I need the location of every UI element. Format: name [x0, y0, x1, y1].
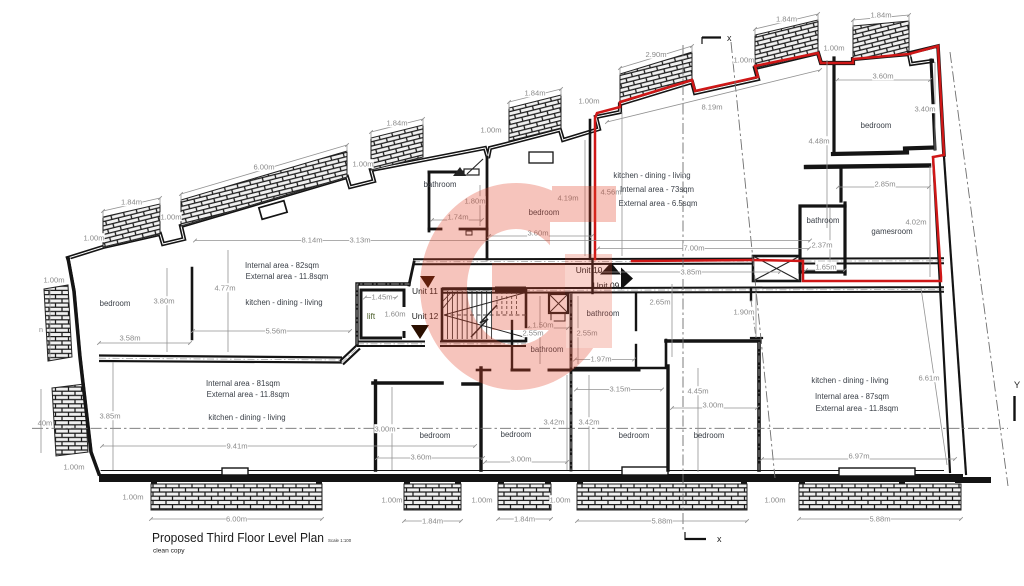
svg-text:gamesroom: gamesroom	[871, 227, 912, 236]
svg-text:clean copy: clean copy	[153, 548, 185, 555]
svg-text:kitchen - dining - living: kitchen - dining - living	[208, 413, 285, 422]
svg-text:2.85m: 2.85m	[874, 180, 895, 189]
svg-text:External area - 11.8sqm: External area - 11.8sqm	[246, 272, 329, 281]
svg-text:bedroom: bedroom	[501, 430, 532, 439]
svg-text:1.00m: 1.00m	[381, 496, 402, 505]
svg-text:3.60m: 3.60m	[410, 453, 431, 462]
svg-text:1.00m: 1.00m	[578, 97, 599, 106]
svg-text:1.00m: 1.00m	[480, 126, 501, 135]
svg-text:5.88m: 5.88m	[651, 517, 672, 526]
svg-text:3.58m: 3.58m	[119, 334, 140, 343]
svg-text:2.37m: 2.37m	[811, 241, 832, 250]
svg-text:3.00m: 3.00m	[702, 401, 723, 410]
svg-text:1.00m: 1.00m	[122, 493, 143, 502]
svg-text:1.84m: 1.84m	[514, 515, 535, 524]
svg-text:1.90m: 1.90m	[733, 308, 754, 317]
svg-text:External area - 11.8sqm: External area - 11.8sqm	[207, 390, 290, 399]
svg-text:40m: 40m	[38, 419, 53, 428]
svg-text:1.00m: 1.00m	[471, 496, 492, 505]
svg-text:4.48m: 4.48m	[808, 137, 829, 146]
svg-text:1.84m: 1.84m	[870, 11, 891, 20]
svg-text:3.42m: 3.42m	[578, 418, 599, 427]
svg-text:1.84m: 1.84m	[422, 517, 443, 526]
svg-text:1.00m: 1.00m	[63, 463, 84, 472]
svg-text:1.65m: 1.65m	[815, 263, 836, 272]
svg-text:8.19m: 8.19m	[701, 103, 722, 112]
svg-text:3.13m: 3.13m	[349, 236, 370, 245]
svg-text:1.00m: 1.00m	[352, 160, 373, 169]
svg-text:bedroom: bedroom	[420, 431, 451, 440]
svg-text:5.56m: 5.56m	[265, 327, 286, 336]
svg-text:1.00m: 1.00m	[43, 276, 64, 285]
svg-text:1.84m: 1.84m	[386, 119, 407, 128]
svg-text:1.00m: 1.00m	[823, 44, 844, 53]
svg-text:Scale 1:100: Scale 1:100	[328, 538, 352, 543]
svg-text:4.77m: 4.77m	[214, 284, 235, 293]
svg-text:6.61m: 6.61m	[918, 374, 939, 383]
svg-text:1.00m: 1.00m	[160, 213, 181, 222]
svg-text:6.97m: 6.97m	[848, 452, 869, 461]
svg-text:3.00m: 3.00m	[510, 455, 531, 464]
svg-text:bedroom: bedroom	[619, 431, 650, 440]
svg-text:3.60m: 3.60m	[872, 72, 893, 81]
svg-text:3.42m: 3.42m	[543, 418, 564, 427]
svg-text:1.84m: 1.84m	[524, 89, 545, 98]
svg-text:3.85m: 3.85m	[99, 412, 120, 421]
svg-text:9.41m: 9.41m	[226, 442, 247, 451]
svg-text:2.65m: 2.65m	[649, 298, 670, 307]
svg-text:4.02m: 4.02m	[905, 218, 926, 227]
svg-text:1.00m: 1.00m	[83, 234, 104, 243]
svg-text:x: x	[727, 33, 732, 43]
svg-text:1.84m: 1.84m	[121, 198, 142, 207]
svg-text:x: x	[717, 534, 722, 544]
svg-text:6.00m: 6.00m	[226, 515, 247, 524]
svg-text:1.60m: 1.60m	[384, 310, 405, 319]
svg-text:8.14m: 8.14m	[301, 236, 322, 245]
svg-text:Y: Y	[1014, 380, 1021, 391]
svg-text:bedroom: bedroom	[861, 121, 892, 130]
svg-text:3.85m: 3.85m	[680, 268, 701, 277]
svg-text:kitchen - dining - living: kitchen - dining - living	[811, 376, 888, 385]
svg-text:Internal area - 82sqm: Internal area - 82sqm	[245, 261, 319, 270]
svg-text:3.80m: 3.80m	[153, 297, 174, 306]
svg-text:Internal area - 87sqm: Internal area - 87sqm	[815, 392, 889, 401]
svg-text:Proposed Third Floor Level Pla: Proposed Third Floor Level Plan	[152, 531, 324, 545]
svg-text:7.00m: 7.00m	[683, 244, 704, 253]
svg-text:2.90m: 2.90m	[645, 50, 666, 59]
svg-text:1.84m: 1.84m	[776, 15, 797, 24]
svg-text:lift: lift	[367, 312, 376, 321]
svg-text:3.40m: 3.40m	[914, 105, 935, 114]
svg-text:Internal area - 73sqm: Internal area - 73sqm	[620, 185, 694, 194]
svg-text:bedroom: bedroom	[694, 431, 725, 440]
svg-text:kitchen - dining - living: kitchen - dining - living	[245, 298, 322, 307]
svg-text:4.45m: 4.45m	[687, 387, 708, 396]
svg-text:5.88m: 5.88m	[869, 515, 890, 524]
svg-text:External area - 11.8sqm: External area - 11.8sqm	[816, 404, 899, 413]
svg-text:n: n	[39, 325, 43, 334]
svg-text:External area - 6.5sqm: External area - 6.5sqm	[619, 199, 698, 208]
svg-text:1.00m: 1.00m	[549, 496, 570, 505]
svg-text:1.00m: 1.00m	[764, 496, 785, 505]
svg-text:1.00m: 1.00m	[733, 56, 754, 65]
svg-text:6.00m: 6.00m	[253, 163, 274, 172]
svg-text:1.45m: 1.45m	[371, 293, 392, 302]
svg-text:bedroom: bedroom	[100, 299, 131, 308]
svg-text:bathroom: bathroom	[807, 216, 840, 225]
svg-text:Internal area - 81sqm: Internal area - 81sqm	[206, 379, 280, 388]
svg-text:3.00m: 3.00m	[374, 425, 395, 434]
